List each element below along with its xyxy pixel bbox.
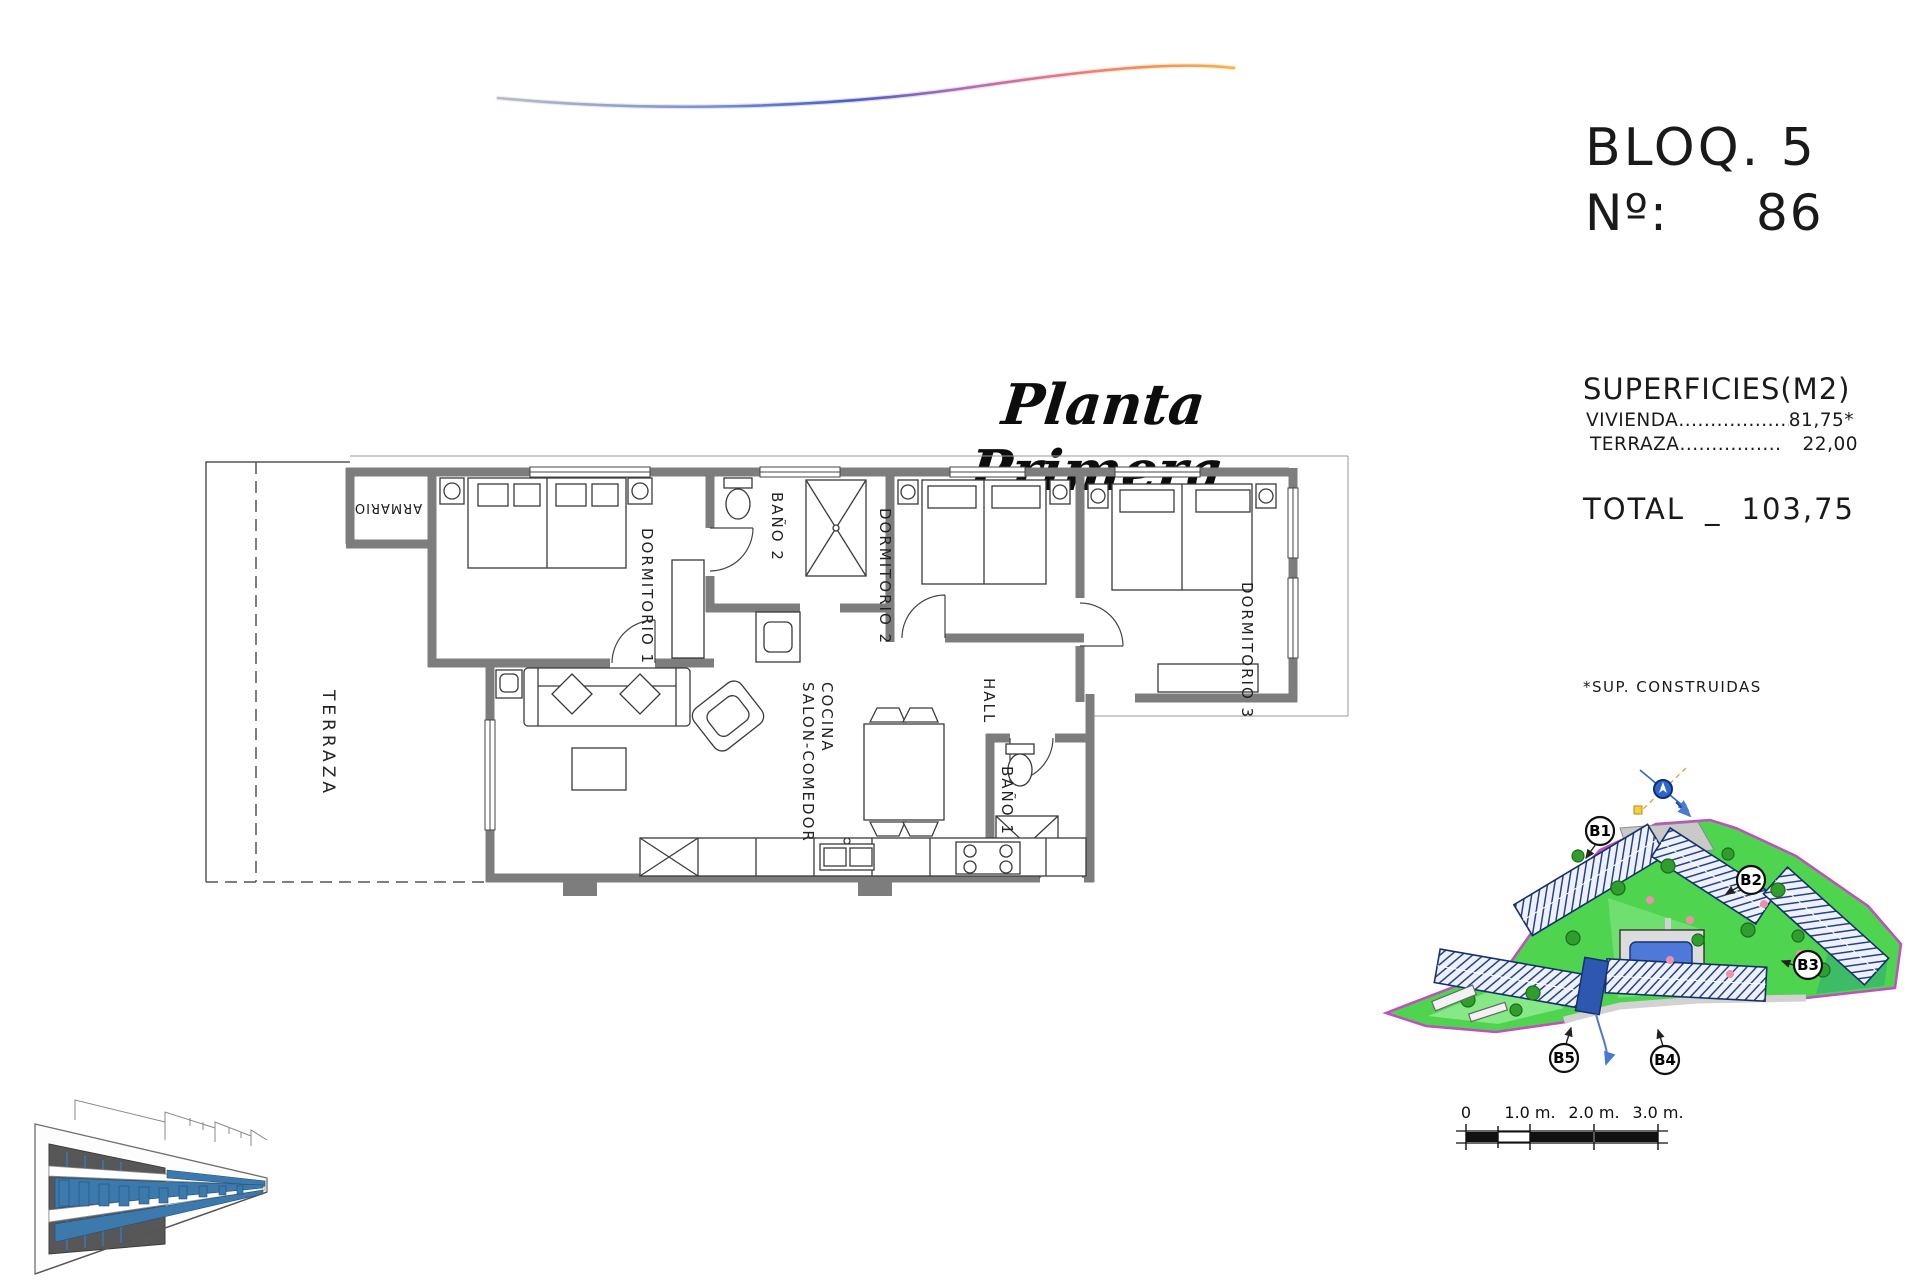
total-separator: _ — [1705, 492, 1722, 526]
scale-label-2: 2.0 m. — [1568, 1103, 1619, 1122]
roof-wireframe — [75, 1100, 267, 1146]
furniture — [440, 478, 1276, 876]
room-label-bano-1: BAÑO 1 — [998, 766, 1016, 836]
gradient-swoosh — [440, 28, 1260, 118]
siteplan: B1 B2 B3 B4 B5 — [1368, 758, 1916, 1098]
leader-dots: .................... — [1678, 410, 1788, 431]
scale-label-3: 3.0 m. — [1632, 1103, 1683, 1122]
surfaces-footnote: *SUP. CONSTRUIDAS — [1583, 678, 1762, 696]
unit-number-label: Nº: — [1585, 184, 1669, 242]
total-value: 103,75 — [1742, 492, 1855, 526]
leader-dots: ................ — [1679, 434, 1802, 455]
building-3d-view — [15, 1082, 545, 1277]
room-label-bano-2: BAÑO 2 — [768, 492, 786, 562]
scale-label-0: 0 — [1461, 1103, 1471, 1122]
surface-name: TERRAZA — [1590, 434, 1679, 455]
room-label-terraza: TERRAZA — [318, 690, 338, 797]
room-label-dormitorio-1: DORMITORIO 1 — [638, 528, 656, 665]
plan-sheet: { "sheet": { "bloq": "BLOQ. 5", "numero_… — [0, 0, 1920, 1280]
room-label-hall: HALL — [980, 678, 998, 724]
compass-icon — [1634, 768, 1690, 816]
scale-label-1: 1.0 m. — [1504, 1103, 1555, 1122]
surfaces-heading: SUPERFICIES(M2) — [1583, 372, 1850, 406]
block-label-b2: B2 — [1740, 871, 1762, 889]
block-label-b4: B4 — [1654, 1051, 1676, 1069]
surface-name: VIVIENDA — [1586, 410, 1678, 431]
block-label-b3: B3 — [1797, 956, 1819, 974]
block-label-b5: B5 — [1553, 1049, 1575, 1067]
block-title: BLOQ. 5 — [1585, 118, 1817, 178]
room-label-armario: ARMARIO — [352, 500, 424, 515]
surface-row-vivienda: VIVIENDA....................81,75* — [1586, 410, 1854, 431]
scale-bar: 0 1.0 m. 2.0 m. 3.0 m. — [1452, 1102, 1692, 1162]
surface-total-row: TOTAL _ 103,75 — [1583, 492, 1855, 526]
unit-number-value: 86 — [1756, 184, 1824, 242]
room-label-salon: SALON-COMEDOR COCINA — [798, 682, 836, 843]
room-label-salon-line1: SALON-COMEDOR — [798, 682, 817, 843]
room-label-dormitorio-2: DORMITORIO 2 — [876, 508, 894, 645]
block-label-b1: B1 — [1589, 822, 1611, 840]
room-label-salon-line2: COCINA — [817, 682, 836, 843]
total-label: TOTAL — [1583, 492, 1685, 526]
surface-value: 22,00 — [1803, 434, 1858, 455]
surface-value: 81,75* — [1789, 410, 1854, 431]
surface-row-terraza: TERRAZA................22,00 — [1590, 434, 1858, 455]
room-label-dormitorio-3: DORMITORIO 3 — [1238, 582, 1256, 719]
